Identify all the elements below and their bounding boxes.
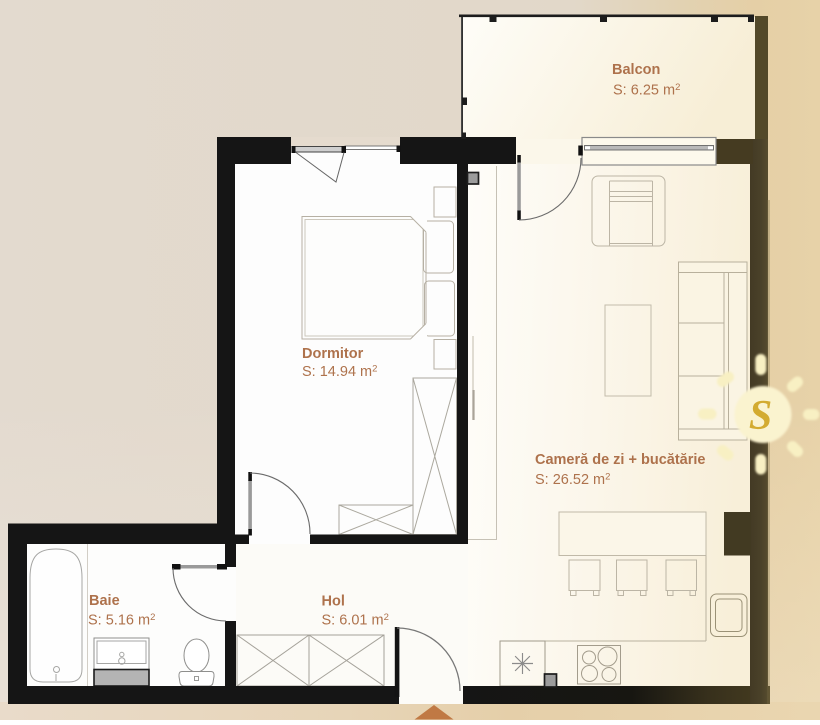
- svg-text:Dormitor: Dormitor: [302, 346, 364, 362]
- svg-text:S: 14.94 m2: S: 14.94 m2: [302, 364, 377, 381]
- svg-text:Hol: Hol: [322, 594, 345, 610]
- svg-text:Balcon: Balcon: [612, 62, 660, 78]
- svg-text:S: 26.52 m2: S: 26.52 m2: [535, 472, 610, 489]
- svg-text:S: 6.25 m2: S: 6.25 m2: [613, 82, 680, 99]
- svg-text:Baie: Baie: [89, 593, 120, 609]
- svg-text:Cameră de zi + bucătărie: Cameră de zi + bucătărie: [535, 452, 705, 468]
- svg-text:S: 5.16 m2: S: 5.16 m2: [88, 612, 155, 629]
- svg-text:S: S: [749, 393, 772, 439]
- svg-text:S: 6.01 m2: S: 6.01 m2: [322, 612, 389, 629]
